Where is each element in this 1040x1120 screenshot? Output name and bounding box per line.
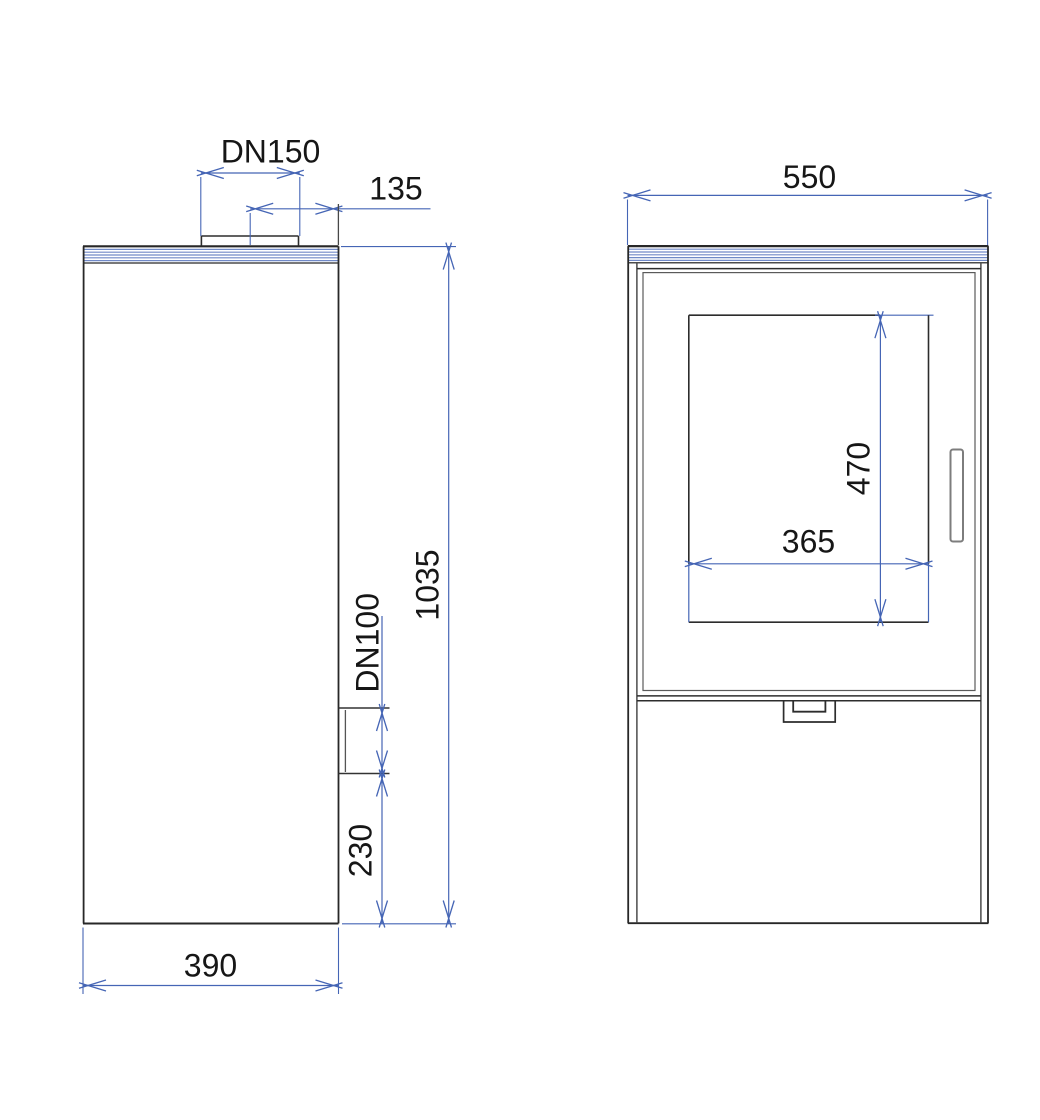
svg-text:365: 365	[782, 524, 835, 560]
svg-text:DN150: DN150	[221, 134, 321, 170]
svg-text:230: 230	[343, 824, 379, 877]
svg-text:390: 390	[184, 948, 237, 984]
svg-text:1035: 1035	[410, 549, 446, 620]
svg-text:550: 550	[783, 159, 836, 195]
svg-text:135: 135	[369, 171, 422, 207]
svg-text:DN100: DN100	[350, 593, 386, 693]
svg-text:470: 470	[841, 442, 877, 495]
